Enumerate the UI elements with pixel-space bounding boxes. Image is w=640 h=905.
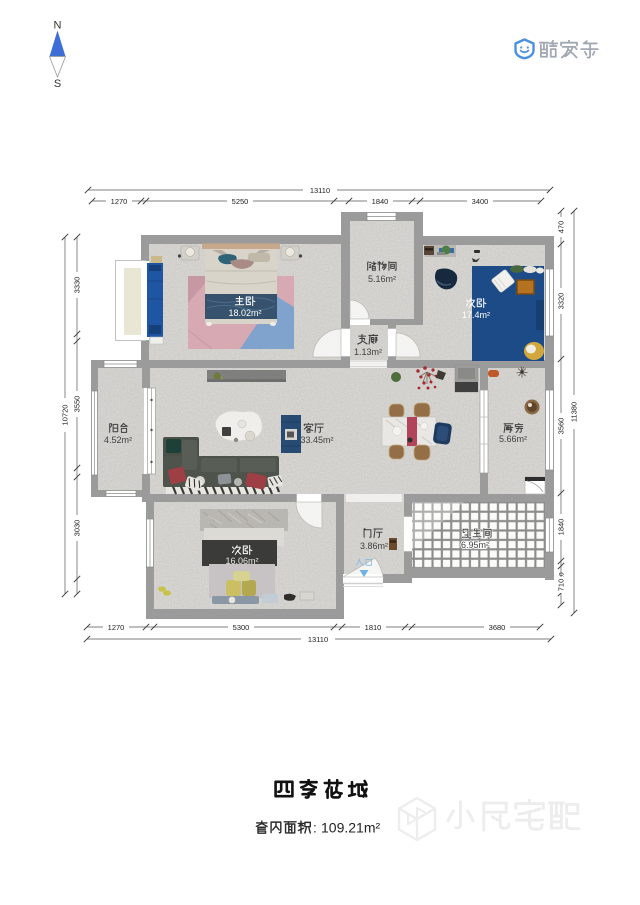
- svg-text:4.52m²: 4.52m²: [104, 435, 132, 445]
- svg-text:6.95m²: 6.95m²: [461, 540, 489, 550]
- svg-text:1840: 1840: [372, 197, 389, 206]
- svg-text:5300: 5300: [233, 623, 250, 632]
- svg-text:470: 470: [557, 221, 566, 234]
- svg-text:1840: 1840: [557, 519, 566, 536]
- svg-text:3400: 3400: [472, 197, 489, 206]
- svg-text:3320: 3320: [557, 293, 566, 310]
- svg-text:16.06m²: 16.06m²: [225, 556, 258, 566]
- svg-text:3030: 3030: [73, 520, 82, 537]
- svg-text:3550: 3550: [73, 396, 82, 413]
- svg-text:5250: 5250: [232, 197, 249, 206]
- svg-text:3330: 3330: [73, 277, 82, 294]
- svg-text:13110: 13110: [310, 186, 330, 195]
- svg-text:5.66m²: 5.66m²: [499, 434, 527, 444]
- svg-text:10720: 10720: [61, 405, 70, 426]
- svg-text:S: S: [54, 78, 61, 90]
- svg-text:1270: 1270: [111, 197, 128, 206]
- svg-text:N: N: [54, 20, 62, 32]
- svg-text:11380: 11380: [570, 402, 579, 422]
- svg-text:5.16m²: 5.16m²: [368, 274, 396, 284]
- svg-text:3680: 3680: [489, 623, 506, 632]
- svg-text:13110: 13110: [308, 635, 328, 644]
- svg-text:710: 710: [557, 579, 566, 592]
- svg-text:1810: 1810: [365, 623, 382, 632]
- svg-text:33.45m²: 33.45m²: [300, 435, 333, 445]
- svg-text:17.4m²: 17.4m²: [462, 310, 490, 320]
- svg-text:109.21m²: 109.21m²: [321, 820, 380, 836]
- svg-text:1.13m²: 1.13m²: [354, 347, 382, 357]
- svg-text::: :: [313, 821, 317, 836]
- svg-text:18.02m²: 18.02m²: [228, 308, 261, 318]
- svg-text:1270: 1270: [108, 623, 125, 632]
- svg-text:3.86m²: 3.86m²: [360, 541, 388, 551]
- svg-text:3560: 3560: [557, 418, 566, 435]
